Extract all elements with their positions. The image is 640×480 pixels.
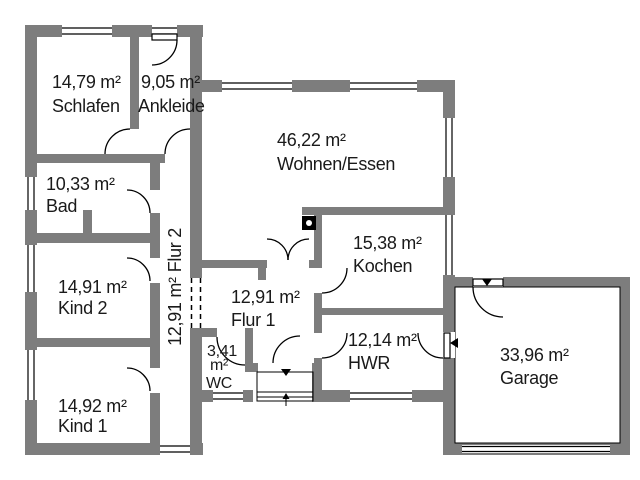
floor-plan-drawing: 14,79 m² Schlafen 9,05 m² Ankleide 46,22… [0,0,640,480]
door-opening [150,258,160,283]
wall-segment [620,277,630,455]
room-name-schlafen: Schlafen [52,96,120,116]
wall-segment [83,210,92,237]
window [350,390,412,402]
entrance-steps [257,369,313,406]
door-leaf [444,333,450,358]
door-swing-arc [473,287,503,317]
room-area-schlafen: 14,79 m² [52,72,121,92]
room-name-hwr: HWR [348,353,390,373]
window [443,118,455,177]
room-area-garage: 33,96 m² [500,345,569,365]
door-opening [150,190,160,213]
door-opening [130,129,139,154]
wall-segment [25,233,160,243]
garage-door [462,445,610,453]
door-swing-arc [322,268,347,293]
room-label-flur2: 12,91 m²Flur 2 [165,228,185,346]
wall-segment [322,308,443,315]
door-opening [314,268,322,293]
room-labels: 14,79 m² Schlafen 9,05 m² Ankleide 46,22… [46,72,569,436]
window [25,350,37,400]
room-name-wc: WC [206,375,232,392]
room-name-flur1: Flur 1 [231,310,276,330]
door-opening [267,260,309,268]
wall-segment [258,268,266,280]
room-name-garage: Garage [500,368,559,388]
window [443,215,455,275]
room-area-kind2: 14,91 m² [58,277,127,297]
window [25,245,37,292]
room-area-bad: 10,33 m² [46,174,115,194]
door-swing-arc [127,258,150,281]
door-swing-arc [165,129,190,154]
room-name-kochen: Kochen [353,256,412,276]
window [222,80,292,92]
wall-segment [302,207,455,215]
window [350,80,417,92]
door-swing-arc [322,333,347,358]
window [160,443,190,455]
window [25,177,37,210]
door-swing-arc [418,333,443,358]
double-door-swing-arc [267,239,288,260]
room-name-bad: Bad [46,196,77,216]
door-swing-arc [273,336,300,363]
chimney-flue [306,220,312,226]
room-area-kind1: 14,92 m² [58,396,127,416]
door-leaf [152,34,177,40]
room-name-ankleide: Ankleide [138,96,205,116]
wall-segment [25,338,160,347]
door-opening [165,154,190,163]
door-swing-arc [127,368,150,391]
room-area-hwr: 12,14 m² [348,330,417,350]
window [62,25,112,37]
passage-opening [190,278,202,328]
room-name-wohnen-essen: Wohnen/Essen [277,154,395,174]
room-area-ankleide: 9,05 m² [141,72,200,92]
door-swing-arc [127,190,150,213]
wall-segment [443,277,630,287]
room-name-kind1: Kind 1 [58,416,108,436]
room-area-kochen: 15,38 m² [353,233,422,253]
garage-interior-outline [455,287,620,443]
door-opening [150,368,160,393]
room-area-wohnen-essen: 46,22 m² [277,130,346,150]
room-area-flur1: 12,91 m² [231,287,300,307]
double-door-swing-arc [288,239,309,260]
door-swing-arc [105,129,130,154]
door-swing-arc [152,40,177,65]
room-name-kind2: Kind 2 [58,298,108,318]
floor-plan: 14,79 m² Schlafen 9,05 m² Ankleide 46,22… [0,0,640,480]
room-area-wc-line2: m² [210,357,229,374]
door-opening [314,333,322,358]
